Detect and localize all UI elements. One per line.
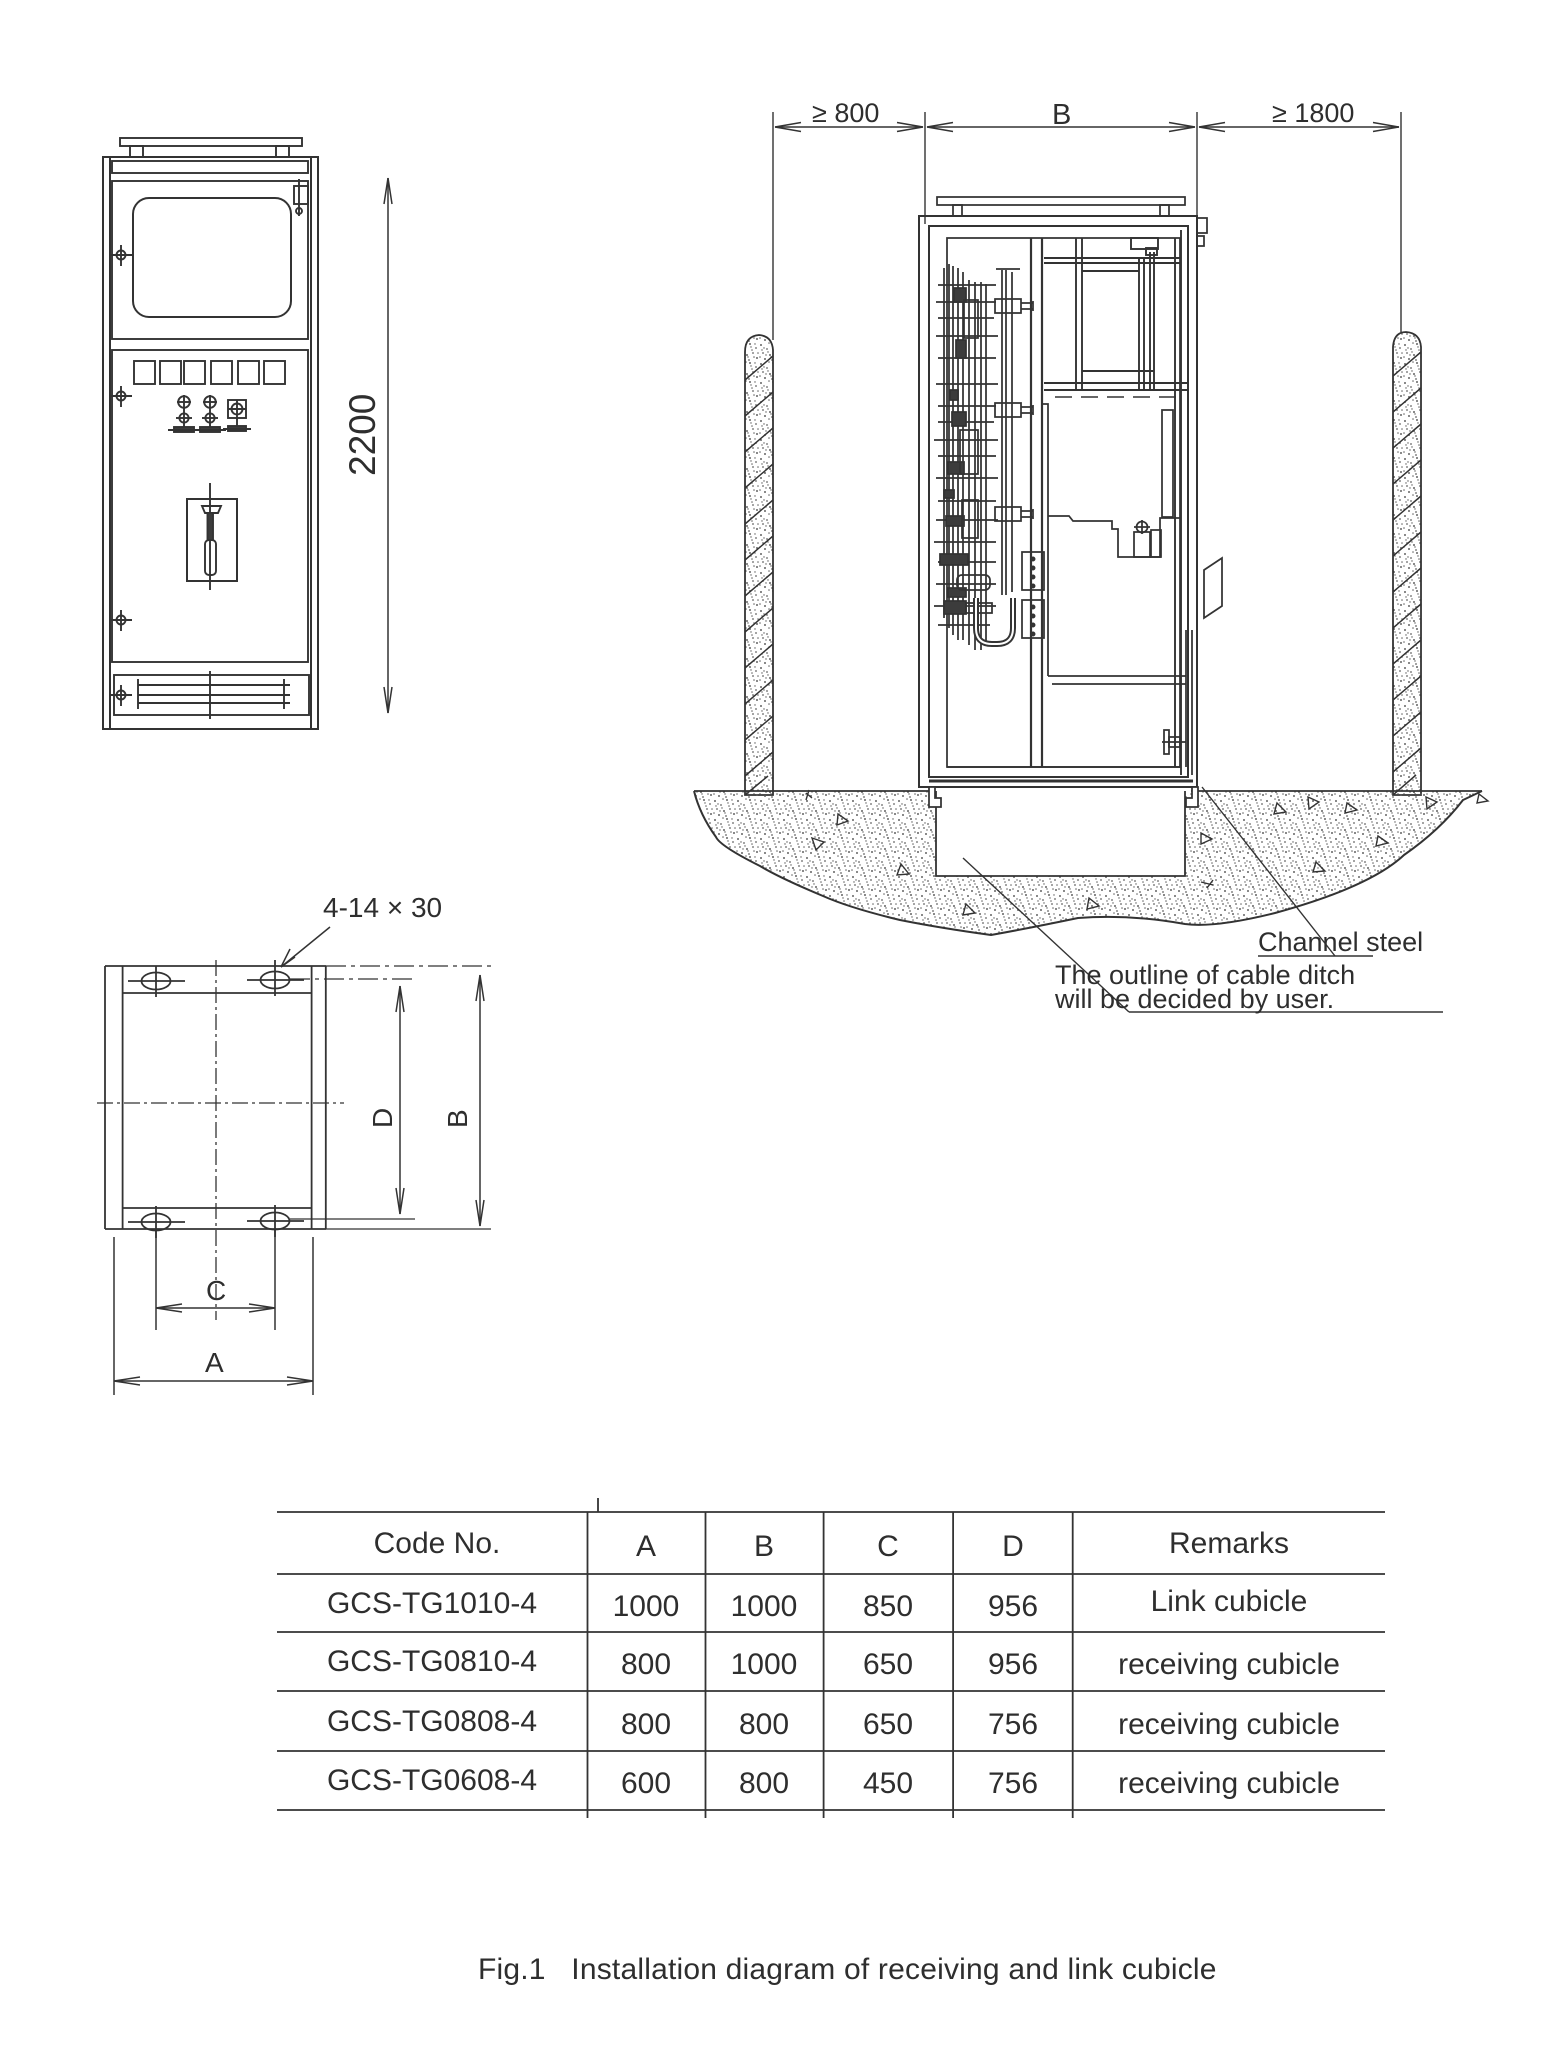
svg-text:GCS-TG0810-4: GCS-TG0810-4 bbox=[327, 1645, 537, 1678]
svg-text:will be decided by user.: will be decided by user. bbox=[1054, 984, 1334, 1014]
svg-text:B: B bbox=[442, 1109, 473, 1128]
svg-text:756: 756 bbox=[988, 1767, 1038, 1800]
svg-text:650: 650 bbox=[863, 1648, 913, 1681]
svg-text:B: B bbox=[754, 1530, 774, 1563]
svg-text:receiving cubicle: receiving cubicle bbox=[1118, 1648, 1340, 1681]
svg-text:C: C bbox=[877, 1530, 899, 1563]
svg-text:Channel steel: Channel steel bbox=[1258, 927, 1423, 957]
svg-text:Link cubicle: Link cubicle bbox=[1151, 1585, 1308, 1618]
svg-text:756: 756 bbox=[988, 1708, 1038, 1741]
svg-text:2200: 2200 bbox=[342, 394, 383, 476]
svg-text:GCS-TG1010-4: GCS-TG1010-4 bbox=[327, 1587, 537, 1620]
svg-text:650: 650 bbox=[863, 1708, 913, 1741]
svg-text:D: D bbox=[367, 1108, 398, 1128]
svg-text:B: B bbox=[1052, 99, 1071, 131]
svg-text:450: 450 bbox=[863, 1767, 913, 1800]
svg-text:1000: 1000 bbox=[731, 1648, 798, 1681]
svg-text:≥ 1800: ≥ 1800 bbox=[1272, 98, 1354, 128]
svg-text:850: 850 bbox=[863, 1590, 913, 1623]
svg-text:600: 600 bbox=[621, 1767, 671, 1800]
svg-text:800: 800 bbox=[621, 1708, 671, 1741]
svg-text:A: A bbox=[205, 1347, 224, 1378]
svg-text:A: A bbox=[636, 1530, 656, 1563]
svg-text:800: 800 bbox=[739, 1708, 789, 1741]
svg-text:Remarks: Remarks bbox=[1169, 1527, 1289, 1560]
svg-text:1000: 1000 bbox=[613, 1590, 680, 1623]
svg-text:receiving cubicle: receiving cubicle bbox=[1118, 1767, 1340, 1800]
svg-text:4-14 × 30: 4-14 × 30 bbox=[323, 892, 442, 923]
svg-text:956: 956 bbox=[988, 1590, 1038, 1623]
svg-text:Fig.1 Installation diagram o: Fig.1 Installation diagram of receiving … bbox=[478, 1953, 1217, 1986]
svg-text:GCS-TG0808-4: GCS-TG0808-4 bbox=[327, 1705, 537, 1738]
svg-text:800: 800 bbox=[621, 1648, 671, 1681]
svg-text:receiving cubicle: receiving cubicle bbox=[1118, 1708, 1340, 1741]
svg-text:C: C bbox=[206, 1275, 226, 1306]
svg-text:GCS-TG0608-4: GCS-TG0608-4 bbox=[327, 1764, 537, 1797]
svg-text:800: 800 bbox=[739, 1767, 789, 1800]
svg-text:≥ 800: ≥ 800 bbox=[812, 98, 879, 128]
svg-text:1000: 1000 bbox=[731, 1590, 798, 1623]
svg-text:D: D bbox=[1002, 1530, 1024, 1563]
svg-text:Code No.: Code No. bbox=[374, 1527, 501, 1560]
svg-text:956: 956 bbox=[988, 1648, 1038, 1681]
